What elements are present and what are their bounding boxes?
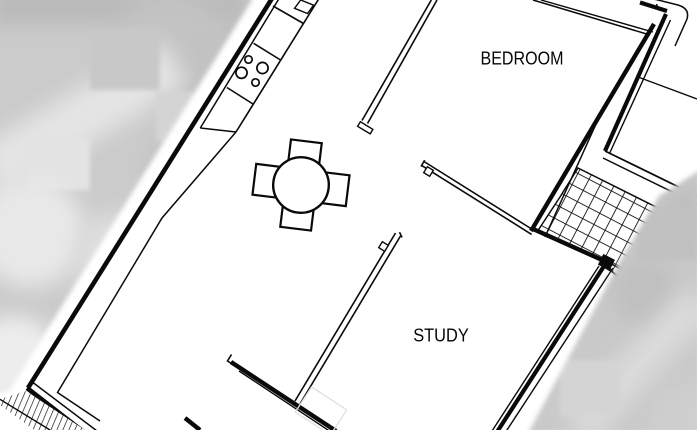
svg-text:BEDROOM: BEDROOM <box>481 48 564 69</box>
svg-text:STUDY: STUDY <box>413 325 469 346</box>
